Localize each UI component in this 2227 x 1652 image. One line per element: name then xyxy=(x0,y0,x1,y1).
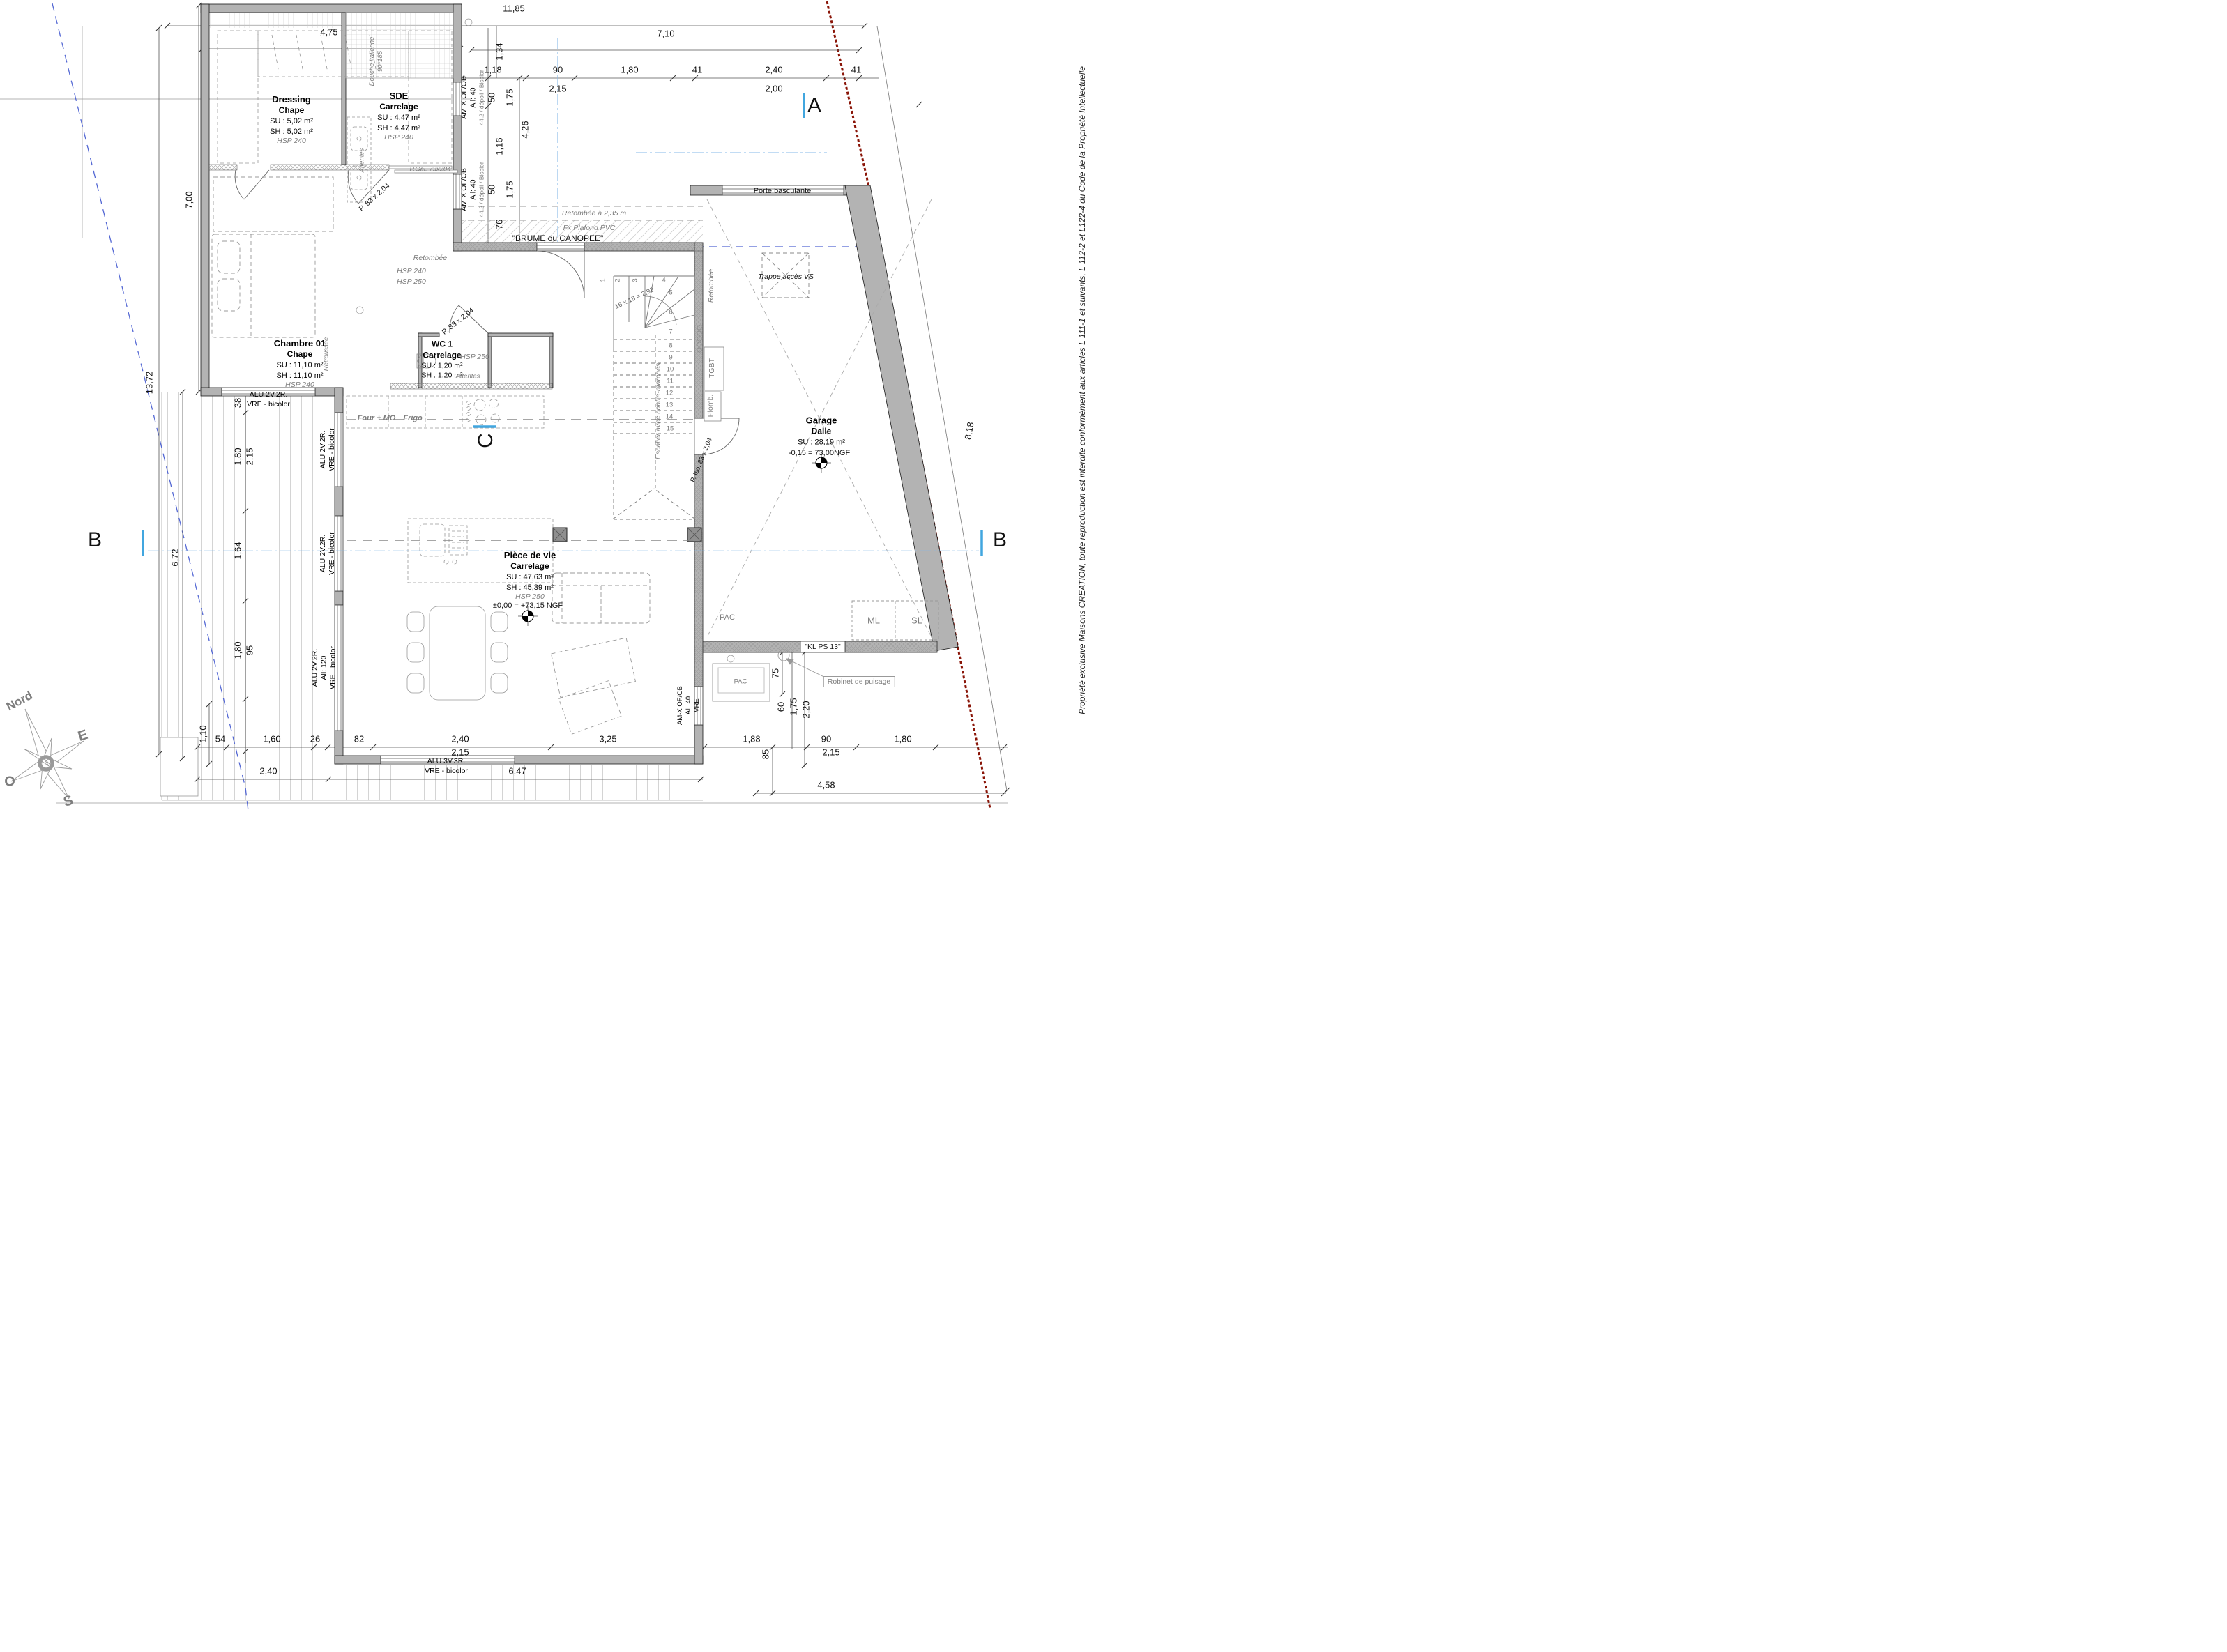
window-label-line: 44.2 / dépoli / Bicolor xyxy=(478,162,486,217)
stair-step: 1 xyxy=(600,278,607,282)
dim-bottom2-458: 4,58 xyxy=(817,780,835,790)
dim-toprow2-215: 2,15 xyxy=(549,84,566,94)
stair-step: 14 xyxy=(666,413,674,421)
four-mo-label: Four + MO xyxy=(358,414,396,422)
dim-topv-134: 1,34 xyxy=(494,43,505,60)
stair-step: 3 xyxy=(632,278,639,282)
room-floor: Carrelage xyxy=(504,561,556,572)
room-sh: SH : 5,02 m² xyxy=(270,127,313,137)
window-label-chambre: ALU 2V.2R. VRE - bicolor xyxy=(247,390,290,410)
sofa xyxy=(552,573,650,734)
section-marker-b-right: B xyxy=(993,528,1007,552)
copyright-notice: Propriété exclusive Maisons CREATION, to… xyxy=(1077,66,1087,714)
plan-drawing xyxy=(0,0,1093,811)
window-label-line: 44.2 / dépoli / Bicolor xyxy=(478,70,486,125)
room-su: SU : 5,02 m² xyxy=(270,116,313,127)
dim-topv-50a: 50 xyxy=(487,93,497,102)
room-name: Dressing xyxy=(270,93,313,105)
pac-interior-label: PAC xyxy=(720,613,735,622)
room-name: WC 1 xyxy=(422,339,463,350)
dim-top-710: 7,10 xyxy=(657,29,674,39)
room-label-garage: Garage Dalle SU : 28,19 m² xyxy=(798,414,845,448)
dim-right-60: 60 xyxy=(776,702,786,712)
ml-label: ML xyxy=(867,615,880,626)
window-label-sejour2: ALU 2V.2R. VRE - bicolor xyxy=(319,532,337,575)
garage-level: -0,15 = 73,00NGF xyxy=(789,449,850,457)
dim-leftchain-38: 38 xyxy=(233,398,243,408)
window-label-amx1: AM-X OF/OB All: 40 44.2 / dépoli / Bicol… xyxy=(460,70,486,125)
room-floor: Chape xyxy=(270,105,313,116)
room-sh: SH : 45,39 m² xyxy=(504,583,556,593)
stair-step: 8 xyxy=(669,342,672,350)
room-su: SU : 1,20 m² xyxy=(422,361,463,371)
dim-leftchain-95: 95 xyxy=(245,645,255,655)
compass-icon xyxy=(11,709,84,799)
sl-label: SL xyxy=(911,615,922,626)
dim-right-175: 1,75 xyxy=(789,698,799,715)
window-label-amx2: AM-X OF/OB All: 40 44.2 / dépoli / Bicol… xyxy=(460,162,486,217)
wc-hsp: HSP 250 xyxy=(460,353,489,361)
pac-exterior-label: PAC xyxy=(734,678,747,686)
dim-toprow-118: 1,18 xyxy=(484,65,501,75)
dining-set xyxy=(407,606,508,700)
retombee-235-label: Retombée à 2,35 m xyxy=(562,209,626,217)
bed xyxy=(212,177,333,337)
robinet-label: Robinet de puisage xyxy=(823,676,895,687)
room-sh: SH : 11,10 m² xyxy=(274,371,326,381)
room-name: SDE xyxy=(377,90,420,102)
window-label-line: AM-X OF/OB xyxy=(460,162,469,217)
window-label-line: VRE - bicolor xyxy=(328,532,337,575)
dim-topv-50b: 50 xyxy=(487,185,497,194)
dim-left-700: 7,00 xyxy=(184,191,195,208)
stair-step: 13 xyxy=(666,401,674,409)
dim-topv-175a: 1,75 xyxy=(505,89,515,106)
stair-step: 7 xyxy=(669,328,672,336)
section-marker-b-left: B xyxy=(88,528,102,552)
window-label-line: VRE xyxy=(693,686,701,725)
attentes-sde: Attentes xyxy=(358,148,366,173)
room-label-chambre: Chambre 01 Chape SU : 11,10 m² SH : 11,1… xyxy=(274,337,326,390)
compass-west-label: O xyxy=(4,774,15,790)
tgbt-label: TGBT xyxy=(708,358,716,378)
dim-leftchain-164: 1,64 xyxy=(233,542,243,559)
shower-label: Douche italienne 90*185 xyxy=(368,37,385,86)
dim-bottom-180: 1,80 xyxy=(894,734,911,744)
window-label-line: ALU 2V.2R. xyxy=(310,646,319,689)
site-lines xyxy=(0,1,1008,811)
stair-step: 9 xyxy=(669,354,672,362)
dim-toprow-90: 90 xyxy=(553,65,563,75)
room-name: Garage xyxy=(798,414,845,426)
dim-bottom-85: 85 xyxy=(761,749,771,759)
dim-bottom-26: 26 xyxy=(310,734,320,744)
window-label-sejour1: ALU 2V.2R. VRE - bicolor xyxy=(319,428,337,471)
dim-leftchain-215: 2,15 xyxy=(245,448,255,465)
shower-label-line2: 90*185 xyxy=(377,37,385,86)
dim-bottom-110: 1,10 xyxy=(198,725,208,742)
shower-label-line1: Douche italienne xyxy=(368,37,377,86)
fx-plafond-label: Fx Plafond PVC xyxy=(563,224,616,232)
entry-opening xyxy=(537,243,584,251)
dim-bottom-82: 82 xyxy=(354,734,364,744)
window-label-line: ALU 3V.3R. xyxy=(425,757,468,767)
window-label-amx3: AM-X OF/OB All: 40 VRE xyxy=(676,686,701,725)
room-hsp: HSP 240 xyxy=(274,381,326,390)
window-label-sejour3: ALU 2V.2R. All: 120 VRE - bicolor xyxy=(310,646,337,689)
stair-step: 5 xyxy=(669,289,672,297)
sejour-level: ±0,00 = +73,15 NGF xyxy=(493,602,563,610)
dim-bottom-90: 90 xyxy=(821,734,831,744)
window-label-line: All: 40 xyxy=(469,162,478,217)
stair-step: 6 xyxy=(669,309,672,316)
room-label-dressing: Dressing Chape SU : 5,02 m² SH : 5,02 m²… xyxy=(270,93,313,146)
window-label-line: All: 40 xyxy=(469,70,478,125)
stair-step: 10 xyxy=(667,366,674,374)
room-su: SU : 28,19 m² xyxy=(798,437,845,448)
room-sh: SH : 4,47 m² xyxy=(377,123,420,134)
dim-bottom-188: 1,88 xyxy=(743,734,760,744)
ml-sl-units xyxy=(852,601,938,640)
room-name: Chambre 01 xyxy=(274,337,326,349)
trappe-label: Trappe accès VS xyxy=(758,273,814,281)
frigo-label: Frigo xyxy=(403,414,423,422)
window-label-line: VRE - bicolor xyxy=(328,428,337,471)
room-su: SU : 4,47 m² xyxy=(377,113,420,123)
shower xyxy=(346,13,453,78)
stair-step: 4 xyxy=(662,277,665,284)
window-label-line: AM-X OF/OB xyxy=(676,686,685,725)
dim-left-1372: 13,72 xyxy=(144,372,155,395)
window-label-bottom: ALU 3V.3R. VRE - bicolor xyxy=(425,757,468,777)
dim-bottom2-240: 2,40 xyxy=(259,766,277,777)
room-hsp: HSP 250 xyxy=(504,592,556,602)
room-label-sejour: Pièce de vie Carrelage SU : 47,63 m² SH … xyxy=(504,549,556,602)
pgal-label: P.Gal. 73x204 xyxy=(410,166,451,174)
room-floor: Dalle xyxy=(798,426,845,437)
dim-topv-116: 1,16 xyxy=(494,137,505,155)
dim-topv-76: 76 xyxy=(494,220,505,229)
dim-bottom-215a: 2,15 xyxy=(451,747,469,758)
window-label-line: ALU 2V.2R. xyxy=(247,390,290,400)
dim-left-672: 6,72 xyxy=(170,549,181,566)
retombee-h-label: Retombée xyxy=(413,254,447,262)
retroussee-label: Retroussée xyxy=(323,337,330,372)
room-floor: Chape xyxy=(274,349,326,360)
stair-note: Escalier avec contre-marches xyxy=(654,363,662,459)
section-marker-c: C xyxy=(474,433,498,448)
hsp240-note: HSP 240 xyxy=(397,267,426,275)
floor-plan-canvas: 11,85 7,10 4,75 1,18 90 1,80 41 2,40 41 … xyxy=(0,0,1093,811)
columns xyxy=(553,528,701,542)
window-label-line: All: 40 xyxy=(685,686,693,725)
window-label-line: VRE - bicolor xyxy=(329,646,338,689)
dim-topv-175b: 1,75 xyxy=(505,181,515,198)
hsp250-note: HSP 250 xyxy=(397,277,426,286)
section-marker-a: A xyxy=(807,94,821,118)
dim-bottom-160: 1,60 xyxy=(263,734,280,744)
dim-toprow-41b: 41 xyxy=(851,65,861,75)
window-label-line: AM-X OF/OB xyxy=(460,70,469,125)
window-label-line: ALU 2V.2R. xyxy=(319,428,328,471)
dim-toprow-240: 2,40 xyxy=(765,65,782,75)
dim-leftchain-180a: 1,80 xyxy=(233,448,243,465)
room-su: SU : 47,63 m² xyxy=(504,572,556,583)
dim-top-475: 4,75 xyxy=(320,27,337,38)
brume-canopee-label: "BRUME ou CANOPEE" xyxy=(512,234,604,243)
plomb-label: Plomb. xyxy=(706,395,715,418)
dim-leftchain-180b: 1,80 xyxy=(233,641,243,659)
dim-toprow-41a: 41 xyxy=(692,65,702,75)
window-label-line: All: 120 xyxy=(319,646,328,689)
stair-step: 11 xyxy=(667,378,674,385)
stair-step: 15 xyxy=(667,425,674,433)
window-label-line: ALU 2V.2R. xyxy=(319,532,328,575)
dim-bottom-215b: 2,15 xyxy=(822,747,839,758)
window-label-line: VRE - bicolor xyxy=(247,400,290,410)
dim-right-75: 75 xyxy=(770,668,781,678)
dim-top-1185: 11,85 xyxy=(503,3,525,14)
window-label-line: VRE - bicolor xyxy=(425,767,468,777)
dim-bottom-54: 54 xyxy=(215,734,225,744)
klps-label: "KL PS 13" xyxy=(805,643,840,651)
kitchen-counter xyxy=(347,396,544,428)
dim-toprow2-200: 2,00 xyxy=(765,84,782,94)
room-floor: Carrelage xyxy=(377,102,420,113)
stair-step: 2 xyxy=(614,278,622,282)
room-floor: Carrelage xyxy=(422,350,463,361)
retombee-v-label: Retombée xyxy=(707,269,715,303)
stair-step: 12 xyxy=(666,390,674,397)
room-hsp: HSP 240 xyxy=(377,133,420,143)
attentes-wc: Attentes xyxy=(456,373,480,381)
room-hsp: HSP 240 xyxy=(270,137,313,146)
dim-topv-426: 4,26 xyxy=(520,121,531,138)
room-su: SU : 11,10 m² xyxy=(274,360,326,371)
dim-right-220: 2,20 xyxy=(801,701,812,718)
porte-basculante-label: Porte basculante xyxy=(754,187,812,195)
dim-bottom2-647: 6,47 xyxy=(508,766,526,777)
dim-bottom-240: 2,40 xyxy=(451,734,469,744)
room-name: Pièce de vie xyxy=(504,549,556,561)
dim-toprow-180: 1,80 xyxy=(621,65,638,75)
room-label-sde: SDE Carrelage SU : 4,47 m² SH : 4,47 m² … xyxy=(377,90,420,143)
dim-bottom-325: 3,25 xyxy=(599,734,616,744)
